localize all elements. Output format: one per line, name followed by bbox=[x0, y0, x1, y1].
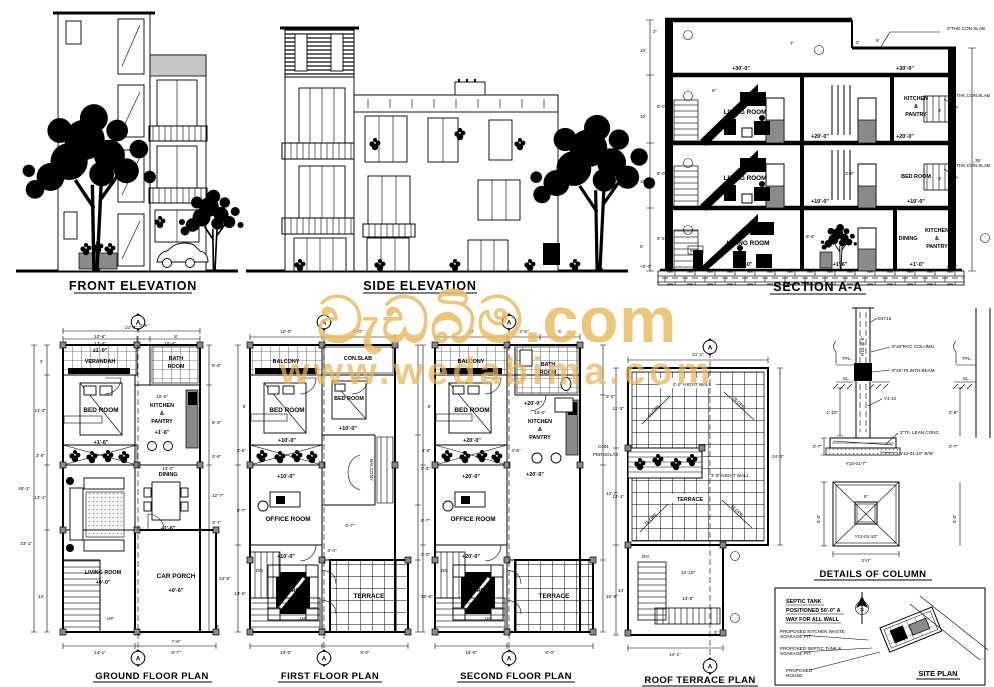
dim: 13'-5" bbox=[219, 576, 231, 581]
svg-text:3'-0": 3'-0" bbox=[816, 514, 821, 524]
dim: 13'-1" bbox=[612, 494, 624, 499]
room-label: TERRACE bbox=[539, 593, 571, 600]
dim: 3'-5" bbox=[845, 171, 855, 176]
room-label: BED ROOM bbox=[269, 407, 304, 414]
dim: 4' bbox=[40, 359, 44, 364]
office-desk bbox=[443, 492, 485, 511]
dim: 10'-6" bbox=[94, 334, 106, 339]
dim: 7'-6" bbox=[171, 639, 181, 644]
pergola-strip bbox=[625, 445, 705, 478]
level-label: GL. bbox=[843, 376, 850, 381]
dim: 2'-7" bbox=[813, 444, 823, 449]
level-label: +20'-0" bbox=[524, 401, 542, 407]
level-label: +0'-0" bbox=[96, 580, 111, 586]
roof-terrace-title: ROOF TERRACE PLAN bbox=[644, 675, 755, 686]
dim: 8'-0" bbox=[353, 329, 363, 334]
room-label: ROOM bbox=[292, 588, 309, 594]
dim: 5' bbox=[558, 329, 562, 334]
dim: 8' bbox=[174, 334, 178, 339]
room-label: OFFICE ROOM bbox=[265, 516, 310, 523]
room-label: BALCONY bbox=[458, 359, 485, 365]
room-label: PANTRY bbox=[151, 419, 173, 425]
column-plan: 9" Y12-01-10" 3'-0" 3'-0" bbox=[816, 482, 899, 563]
dim: 12'-7" bbox=[212, 493, 224, 498]
dim: 3'-5" bbox=[519, 329, 529, 334]
level-label: +10'-0" bbox=[278, 438, 296, 444]
level-label: +1'-6" bbox=[833, 262, 848, 268]
room-label: KITCHEN bbox=[150, 403, 174, 409]
dim: 5'-4" bbox=[421, 466, 431, 471]
dim: 8'-0" bbox=[545, 650, 555, 655]
dim: 14'-1" bbox=[669, 652, 681, 657]
level-label: ±1'-0" bbox=[93, 348, 108, 354]
dim: 13'-2" bbox=[162, 466, 174, 471]
dim: 21'-1" bbox=[692, 352, 704, 357]
level-label: +20'-0" bbox=[811, 134, 829, 140]
room-label: DINING bbox=[899, 236, 918, 242]
dim: 3' bbox=[938, 108, 942, 113]
svg-text:9": 9" bbox=[864, 494, 869, 499]
dim: 8'-6" bbox=[806, 234, 816, 239]
dim: 3'-6" bbox=[36, 453, 46, 458]
note: 9"x9"RCC COLUMN bbox=[892, 344, 934, 349]
dim: 10'-0" bbox=[156, 394, 168, 399]
svg-text:POSITIONED 50'-0" A: POSITIONED 50'-0" A bbox=[786, 608, 841, 614]
sofa-set bbox=[66, 477, 124, 552]
details-of-column: 04Y16 R10 @ 6" 9"x9"RCC COLUMN 9"x9" PLI… bbox=[813, 308, 990, 580]
dim: 2'-0" bbox=[421, 552, 431, 557]
level-label: +30'-0" bbox=[896, 66, 914, 72]
room-label: LIVING ROOM bbox=[724, 175, 767, 182]
room-label: PANTRY bbox=[529, 435, 551, 441]
room-label: KITCHEN bbox=[925, 228, 949, 234]
note: Y12-01-10" B/W bbox=[900, 451, 934, 456]
site-plan-box: N SEPTIC TANK POSITIONED 50'-0" A WAY FO… bbox=[775, 588, 988, 685]
balcony-vertical-label: BALCONY bbox=[369, 459, 374, 481]
first-floor-plan: BALCONY CON.SLAB BED ROOM +10'-0" BED RO… bbox=[234, 313, 433, 682]
dim: 14' bbox=[38, 594, 44, 599]
level-label: +1'-6" bbox=[94, 440, 109, 446]
dim: 24'-3" bbox=[772, 454, 784, 459]
dim: 6" bbox=[712, 88, 717, 93]
dim: 13'-4" bbox=[94, 341, 106, 346]
level-label: +20'-0" bbox=[896, 134, 914, 140]
dim: 3' bbox=[938, 176, 942, 181]
room-label: ROOM bbox=[477, 588, 494, 594]
level-label: +1'-0" bbox=[738, 262, 753, 268]
level-label: +10'-0" bbox=[277, 554, 295, 560]
dim: 10' bbox=[640, 179, 646, 184]
room-label: KITCHEN bbox=[904, 96, 928, 102]
room-label: BED ROOM bbox=[901, 174, 931, 180]
room-label: OFFICE ROOM bbox=[450, 516, 495, 523]
level-label: +0'-0" bbox=[946, 264, 958, 269]
svg-text:SEPTIC TANK: SEPTIC TANK bbox=[786, 599, 822, 605]
dim: 10' bbox=[468, 329, 474, 334]
stair-label: DN bbox=[441, 568, 448, 573]
svg-text:SOAKAGE PIT: SOAKAGE PIT bbox=[780, 634, 811, 639]
dim: 13'-10" bbox=[681, 570, 696, 575]
svg-text:N: N bbox=[860, 607, 863, 612]
room-label: BATH bbox=[169, 356, 184, 362]
dim: 8'-7" bbox=[171, 650, 181, 655]
dim: 8'-0" bbox=[657, 104, 667, 109]
dim: 13'-1" bbox=[34, 495, 46, 500]
room-label: & bbox=[935, 236, 939, 242]
room-label: ROOM bbox=[168, 364, 185, 370]
room-label: DINING bbox=[159, 472, 178, 478]
level-label: +10'-0" bbox=[339, 426, 357, 432]
stirrup-note: R10 @ 6" bbox=[860, 336, 865, 356]
room-label: LIVING ROOM bbox=[727, 240, 770, 247]
dim: 14' bbox=[618, 588, 624, 593]
dim: 5'-6" bbox=[690, 248, 700, 253]
first-floor-title: FIRST FLOOR PLAN bbox=[281, 671, 379, 682]
dim: 5'-5" bbox=[212, 363, 222, 368]
site-shape bbox=[880, 607, 942, 652]
dim: 3'-4" bbox=[327, 548, 337, 553]
dim: 3' bbox=[714, 630, 718, 635]
svg-text:2'-7": 2'-7" bbox=[949, 444, 959, 449]
svg-text:Y12-01-10": Y12-01-10" bbox=[854, 534, 877, 539]
note: 2"Th. LEAN CONC. bbox=[900, 430, 940, 435]
stair-label: UP bbox=[300, 616, 306, 621]
details-of-column-title: DETAILS OF COLUMN bbox=[820, 569, 927, 580]
dim: 11'-3" bbox=[35, 408, 47, 413]
dim: 8'-7" bbox=[421, 518, 431, 523]
dim: 3'-5" bbox=[606, 394, 616, 399]
section-a-a: 2" 10' 8'-0" 10' 8'-0" 10' 9'-2" 5' 35' … bbox=[640, 20, 990, 294]
stair-label: UP bbox=[107, 616, 113, 621]
room-label: LIVING ROOM bbox=[724, 109, 767, 116]
front-elevation-title: FRONT ELEVATION bbox=[69, 279, 197, 293]
dim: 8'-7" bbox=[237, 508, 247, 513]
level-label: +1'-0" bbox=[910, 262, 925, 268]
svg-text:HOUSE: HOUSE bbox=[786, 673, 802, 678]
room-label: CAR PORCH bbox=[157, 573, 196, 580]
second-floor-title: SECOND FLOOR PLAN bbox=[460, 671, 572, 682]
note: PERGOLAS bbox=[593, 452, 618, 457]
dim: 10' bbox=[640, 114, 646, 119]
slab-note: 5"THK.CON.SLAB bbox=[952, 93, 990, 98]
level-label: +10'-0" bbox=[811, 199, 829, 205]
room-label: BALCONY bbox=[273, 359, 300, 365]
roof-terrace-plan: 2'-0" HIGHT WALL 3'-0" HIGHT WALL SLOPE … bbox=[612, 338, 784, 686]
dim: 1'-10" bbox=[826, 410, 838, 415]
dim: 2' bbox=[856, 40, 860, 45]
room-label: TERRACE bbox=[354, 593, 386, 600]
dim: 4'-6" bbox=[511, 448, 521, 453]
dim: 3'-6" bbox=[422, 448, 432, 453]
level-label: +20'-0" bbox=[463, 438, 481, 444]
dim: 13'-5" bbox=[682, 596, 694, 601]
note: 9"x9" PLINTH BEAM bbox=[892, 368, 935, 373]
planter-strip bbox=[63, 445, 137, 465]
svg-text:3'-0": 3'-0" bbox=[861, 558, 871, 563]
room-label: LIVING ROOM bbox=[85, 570, 122, 576]
dim: 45'-1" bbox=[18, 486, 30, 491]
side-elevation-title: SIDE ELEVATION bbox=[363, 279, 477, 293]
dim: 3'-6" bbox=[212, 454, 222, 459]
room-label: VERANDAH bbox=[85, 359, 116, 365]
slab-note: 5"THK.CON.SLAB bbox=[952, 163, 990, 168]
room-label: BED ROOM bbox=[334, 396, 364, 402]
room-label: PANTRY bbox=[926, 244, 948, 250]
dim: 9'-2" bbox=[657, 236, 667, 241]
dim: 3'-5" bbox=[139, 323, 149, 328]
dim: 8' bbox=[243, 404, 247, 409]
room-label: CON.SLAB bbox=[344, 356, 372, 362]
level-label: +1'-6" bbox=[161, 526, 176, 532]
wall-note: 2'-0" HIGHT WALL bbox=[673, 382, 712, 387]
slab-note: 5"THK.CON.SLAB bbox=[947, 26, 985, 31]
ground-floor-title: GROUND FLOOR PLAN bbox=[95, 671, 208, 682]
svg-text:GL.: GL. bbox=[963, 376, 970, 381]
room-label: BED ROOM bbox=[454, 407, 489, 414]
site-labels: PROPOSED KITCHEN WASTE SOAKAGE PIT PROPO… bbox=[780, 629, 845, 678]
north-arrow: N bbox=[856, 592, 869, 624]
svg-text:WAY FOR ALL WALL: WAY FOR ALL WALL bbox=[786, 617, 840, 623]
wall-note: 3'-0" HIGHT WALL bbox=[711, 473, 750, 478]
ground-floor-plan: VERANDAH BED ROOM +1'-6" BATH ROOM 10'-0… bbox=[18, 313, 231, 682]
room-label: BATH bbox=[541, 362, 556, 368]
blueprint-drawing: A FRONT EL bbox=[0, 0, 994, 687]
note: Y10-01-7" bbox=[846, 461, 867, 466]
dim: 13'-0" bbox=[465, 650, 477, 655]
stair-label: DN bbox=[256, 568, 263, 573]
stair-label: UP bbox=[485, 616, 491, 621]
dim: 8'-3" bbox=[212, 420, 222, 425]
dim: 10' bbox=[640, 48, 646, 53]
room-label: & bbox=[538, 427, 542, 433]
level-label: +30'-0" bbox=[732, 66, 750, 72]
dim: 7' bbox=[790, 41, 794, 46]
room-label: TERRACE bbox=[677, 497, 703, 503]
room-label: KITCHEN bbox=[528, 419, 552, 425]
level-label: +20'-0" bbox=[462, 554, 480, 560]
room-label: PANTRY bbox=[905, 112, 927, 118]
side-elevation: SIDE ELEVATION bbox=[246, 28, 655, 293]
rebar-note: 04Y16 bbox=[878, 316, 892, 321]
svg-text:BALCONY: BALCONY bbox=[369, 459, 374, 481]
level-label: +20'-0" bbox=[462, 474, 480, 480]
level-label: +0'-6" bbox=[169, 588, 184, 594]
dim: 10'-4" bbox=[164, 341, 176, 346]
dim: 5' bbox=[876, 38, 880, 43]
dim: 11'-3" bbox=[613, 406, 625, 411]
dim: 2" bbox=[653, 29, 658, 34]
note: CON. bbox=[598, 444, 609, 449]
room-label: BED ROOM bbox=[83, 407, 118, 414]
dim: 8' bbox=[428, 404, 432, 409]
room-label: & bbox=[914, 104, 918, 110]
dim: 3'-7" bbox=[212, 520, 222, 525]
dim: 8'-0" bbox=[360, 650, 370, 655]
svg-text:SOAKAGE PIT: SOAKAGE PIT bbox=[780, 651, 811, 656]
dim: 13'-5" bbox=[234, 591, 246, 596]
svg-text:FFL.: FFL. bbox=[963, 356, 972, 361]
level-label: +1'-6" bbox=[155, 430, 170, 436]
dim: 14'-1" bbox=[94, 650, 106, 655]
dim: 2' bbox=[216, 624, 220, 629]
level-label: +10'-0" bbox=[277, 474, 295, 480]
septic-note: SEPTIC TANK POSITIONED 50'-0" A WAY FOR … bbox=[786, 599, 844, 623]
note: Y4 12 bbox=[884, 396, 896, 401]
planter-strip bbox=[250, 445, 322, 465]
level-label: FFL. bbox=[843, 356, 852, 361]
dim: 5'-7" bbox=[345, 523, 355, 528]
dim: 10'-0" bbox=[534, 410, 546, 415]
dim: 21'-6" bbox=[125, 325, 137, 330]
dim: 8'-0" bbox=[657, 171, 667, 176]
planter-strip bbox=[435, 445, 507, 465]
section-doors bbox=[766, 98, 876, 271]
svg-text:3'-0": 3'-0" bbox=[952, 514, 957, 524]
front-elevation: FRONT ELEVATION bbox=[16, 13, 244, 293]
second-floor-plan: BALCONY BED ROOM +20'-0" BATH ROOM +20'-… bbox=[420, 313, 618, 682]
svg-text:2'-6": 2'-6" bbox=[949, 410, 959, 415]
room-label: ROOM bbox=[540, 370, 557, 376]
dim: 23'-1" bbox=[20, 541, 32, 546]
section-title: SECTION A-A bbox=[773, 280, 863, 294]
dim: 3'-6" bbox=[237, 448, 247, 453]
blueprint-sheet: A FRONT EL bbox=[0, 0, 994, 687]
office-desk bbox=[258, 492, 300, 511]
site-plan-title: SITE PLAN bbox=[918, 669, 957, 678]
level-label: +20'-0" bbox=[526, 472, 544, 478]
dim: 5' bbox=[640, 244, 644, 249]
level-label: +0'-0" bbox=[640, 264, 652, 269]
dim: 13'-0" bbox=[280, 650, 292, 655]
stair-label: DN bbox=[642, 554, 649, 559]
level-label: +10'-0" bbox=[907, 199, 925, 205]
room-label: & bbox=[160, 411, 164, 417]
dim: 10'-0" bbox=[280, 329, 292, 334]
column-detail-partial: FFL. GL. 2'-6" 2'-7" 3'-0" bbox=[949, 308, 990, 546]
